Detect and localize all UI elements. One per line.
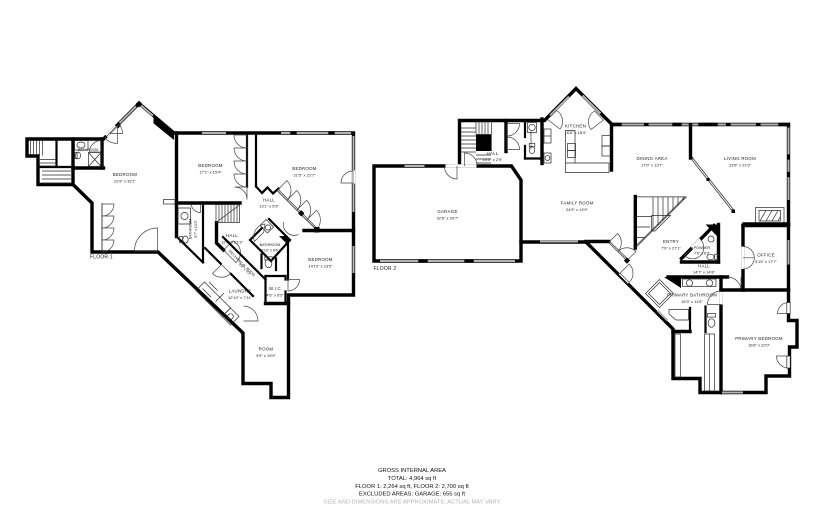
svg-text:4'6" x 6'5": 4'6" x 6'5" bbox=[266, 293, 284, 298]
svg-text:23'6" x 21'9": 23'6" x 21'9" bbox=[729, 163, 752, 168]
svg-text:POWDER: POWDER bbox=[694, 246, 711, 250]
svg-text:9'10" x 8'6": 9'10" x 8'6" bbox=[261, 249, 279, 253]
svg-text:12'10" x 7'11": 12'10" x 7'11" bbox=[228, 295, 252, 300]
svg-text:9'9" x 19'9": 9'9" x 19'9" bbox=[256, 353, 276, 358]
svg-text:BATHROOM: BATHROOM bbox=[529, 131, 533, 149]
svg-text:13'1" x 5'9": 13'1" x 5'9" bbox=[259, 204, 279, 209]
svg-text:ENTRY: ENTRY bbox=[663, 239, 679, 244]
svg-text:LAUNDRY: LAUNDRY bbox=[229, 289, 252, 294]
svg-text:DINING AREA: DINING AREA bbox=[636, 156, 667, 161]
svg-text:GROSS INTERNAL AREA: GROSS INTERNAL AREA bbox=[378, 468, 446, 474]
svg-text:14'7" x 14'8": 14'7" x 14'8" bbox=[693, 270, 716, 275]
svg-text:HALL: HALL bbox=[487, 151, 499, 156]
svg-text:BEDROOM: BEDROOM bbox=[113, 172, 138, 177]
svg-text:21'5" x 21'7": 21'5" x 21'7" bbox=[294, 173, 317, 178]
svg-text:HALL: HALL bbox=[263, 198, 275, 203]
svg-text:W.I.C: W.I.C bbox=[269, 286, 281, 291]
svg-text:9'10" x 17'7": 9'10" x 17'7" bbox=[755, 259, 778, 264]
svg-text:EXCLUDED AREAS: GARAGE: 655 sq: EXCLUDED AREAS: GARAGE: 655 sq ft bbox=[359, 492, 465, 498]
svg-text:ROOM: ROOM bbox=[259, 347, 274, 352]
svg-text:HALL: HALL bbox=[226, 233, 238, 238]
svg-text:FAMILY ROOM: FAMILY ROOM bbox=[561, 201, 594, 206]
svg-text:OFFICE: OFFICE bbox=[757, 253, 775, 258]
svg-text:BATHROOM: BATHROOM bbox=[260, 243, 281, 247]
svg-text:12'4" x 21'3": 12'4" x 21'3" bbox=[221, 240, 244, 245]
svg-text:17'1" x 15'4": 17'1" x 15'4" bbox=[200, 170, 223, 175]
svg-text:SIZE AND DIMENSIONS ARE APPROX: SIZE AND DIMENSIONS ARE APPROXIMATE, ACT… bbox=[324, 500, 501, 506]
svg-text:BEDROOM: BEDROOM bbox=[292, 166, 317, 171]
svg-text:14'0" x 2'9": 14'0" x 2'9" bbox=[483, 157, 503, 162]
svg-text:22'9" x 32'1": 22'9" x 32'1" bbox=[114, 179, 137, 184]
svg-text:7'9" x 27'1": 7'9" x 27'1" bbox=[661, 246, 681, 251]
svg-text:FLOOR 1: 2,264 sq ft, FLOOR 2:: FLOOR 1: 2,264 sq ft, FLOOR 2: 2,700 sq … bbox=[355, 484, 469, 490]
svg-text:FLOOR 1: FLOOR 1 bbox=[90, 255, 113, 261]
svg-text:FLOOR 2: FLOOR 2 bbox=[374, 266, 397, 272]
svg-text:GARAGE: GARAGE bbox=[437, 209, 457, 214]
svg-text:BEDROOM: BEDROOM bbox=[308, 257, 333, 262]
svg-text:32'6" x 20'7": 32'6" x 20'7" bbox=[437, 216, 460, 221]
svg-text:16'8" x 22'0": 16'8" x 22'0" bbox=[748, 343, 771, 348]
svg-text:TOTAL: 4,964 sq ft: TOTAL: 4,964 sq ft bbox=[388, 476, 437, 482]
svg-text:16'3" x 11'6": 16'3" x 11'6" bbox=[681, 299, 703, 304]
svg-text:BEDROOM: BEDROOM bbox=[198, 163, 223, 168]
svg-text:LIVING ROOM: LIVING ROOM bbox=[724, 156, 756, 161]
svg-text:24'9" x 14'9": 24'9" x 14'9" bbox=[566, 207, 589, 212]
svg-text:14'10" x 13'5": 14'10" x 13'5" bbox=[308, 264, 333, 269]
svg-text:KITCHEN: KITCHEN bbox=[565, 124, 586, 129]
svg-text:17'0" x 13'7": 17'0" x 13'7" bbox=[641, 163, 664, 168]
svg-text:HALL: HALL bbox=[698, 264, 710, 269]
svg-text:PRIMARY BEDROOM: PRIMARY BEDROOM bbox=[735, 336, 783, 341]
svg-text:5'7" x 13'2": 5'7" x 13'2" bbox=[194, 219, 198, 237]
